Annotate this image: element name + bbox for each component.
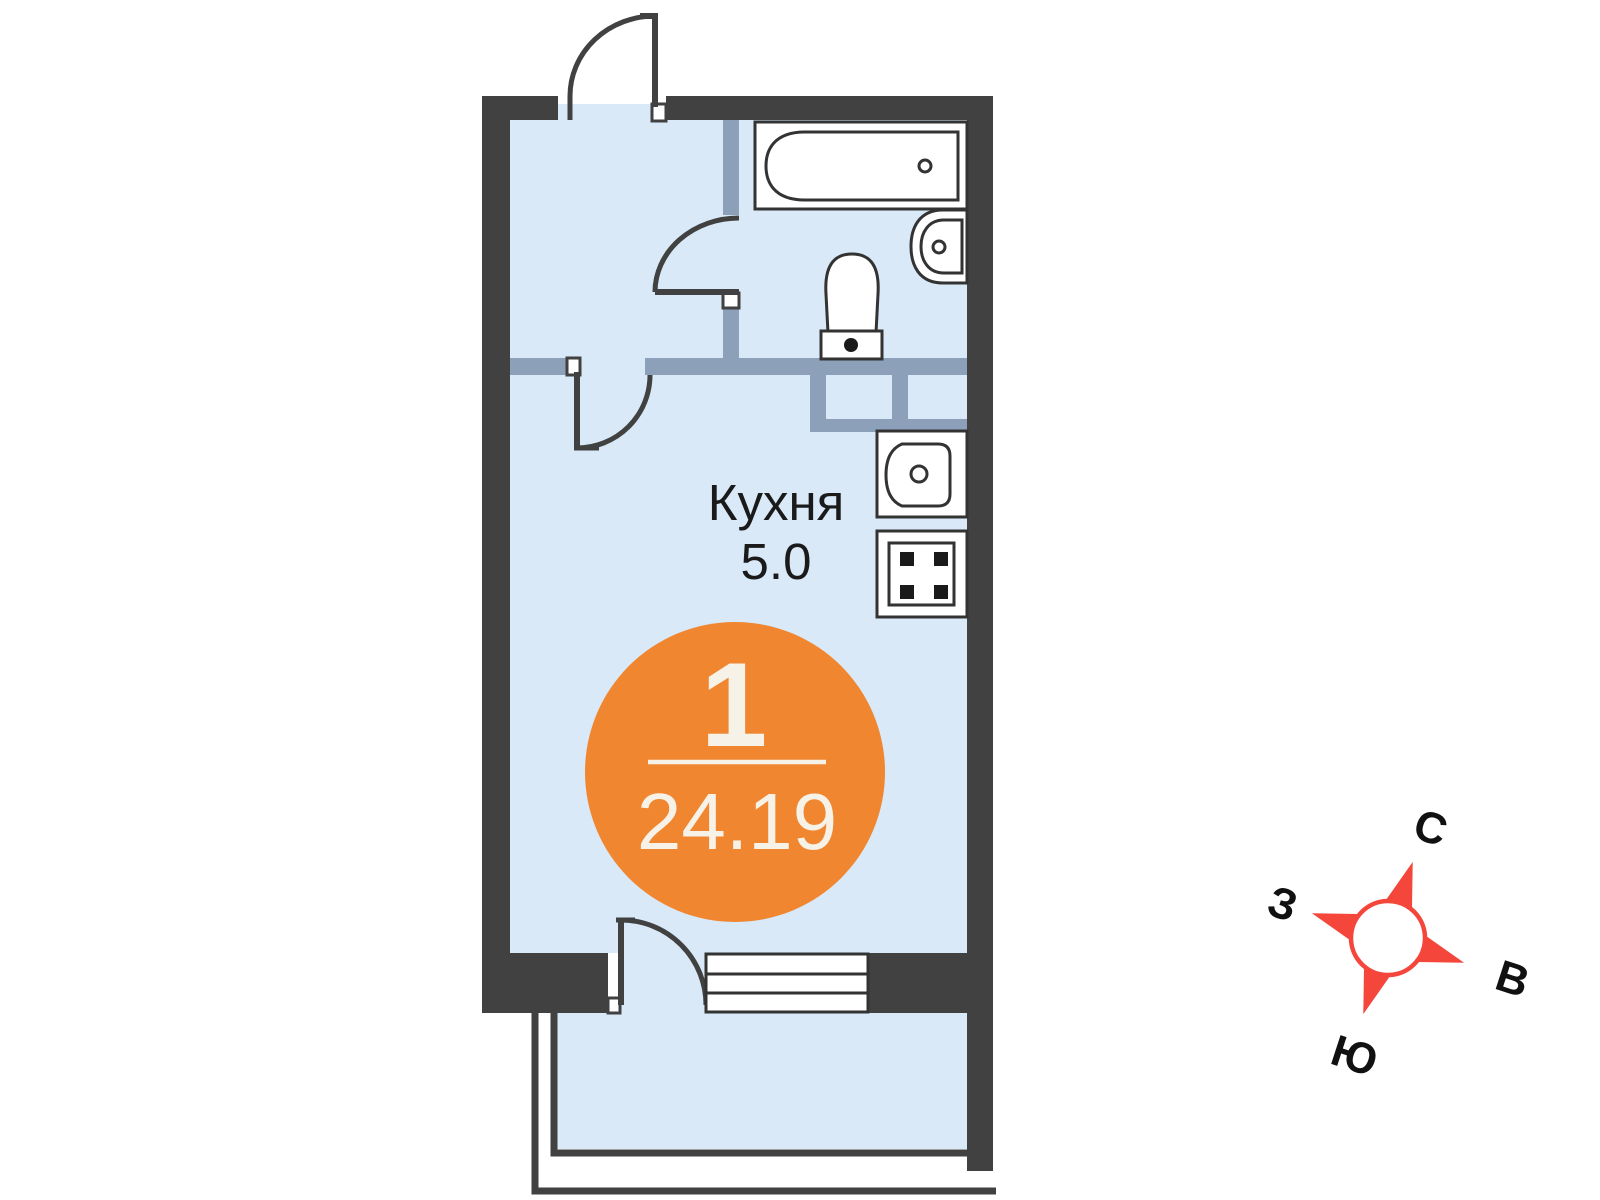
toilet bbox=[821, 254, 882, 359]
stove bbox=[877, 531, 967, 617]
compass-east-label: В bbox=[1490, 951, 1535, 1007]
floor-plan-page: Кухня 5.0 1 24.19 С В Ю З bbox=[0, 0, 1600, 1200]
kitchen-area: 5.0 bbox=[741, 533, 812, 590]
compass-rose: С В Ю З bbox=[1262, 800, 1535, 1087]
area-badge: 1 24.19 bbox=[585, 622, 885, 922]
window bbox=[706, 954, 868, 1012]
compass-south-label: Ю bbox=[1325, 1026, 1383, 1087]
washbasin bbox=[911, 210, 967, 283]
kitchen-sink-unit bbox=[877, 431, 967, 517]
badge-rooms-count: 1 bbox=[701, 638, 768, 772]
compass-circle-icon bbox=[1351, 901, 1425, 975]
bathtub bbox=[755, 122, 967, 209]
badge-total-area: 24.19 bbox=[637, 777, 837, 866]
balcony bbox=[535, 1013, 996, 1191]
compass-north-label: С bbox=[1408, 800, 1453, 856]
toilet-flush-dot bbox=[844, 338, 858, 352]
floor-plan-svg: Кухня 5.0 1 24.19 С В Ю З bbox=[0, 0, 1600, 1200]
compass-west-label: З bbox=[1262, 877, 1303, 932]
kitchen-label: Кухня bbox=[708, 474, 845, 531]
